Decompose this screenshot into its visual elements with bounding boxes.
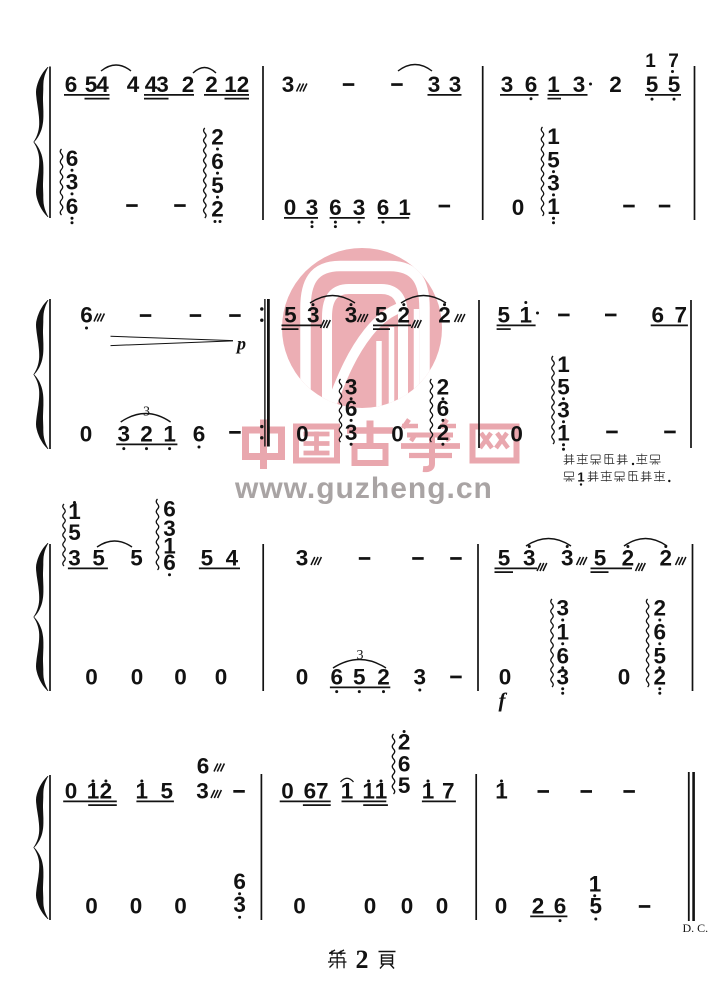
svg-text:0: 0	[401, 894, 414, 919]
svg-text:0: 0	[618, 665, 631, 690]
svg-text:6: 6	[554, 894, 567, 919]
svg-text:6: 6	[66, 146, 79, 171]
svg-text:7: 7	[316, 779, 329, 804]
svg-text:0: 0	[296, 422, 309, 447]
svg-text:3: 3	[428, 72, 441, 97]
svg-text:5: 5	[668, 72, 681, 97]
svg-text:2: 2	[211, 197, 224, 222]
svg-text:6: 6	[193, 422, 206, 447]
svg-text:6: 6	[330, 665, 343, 690]
svg-text:2: 2	[377, 665, 390, 690]
svg-text:1: 1	[547, 72, 560, 97]
svg-text:6: 6	[329, 195, 342, 220]
svg-text:5: 5	[594, 546, 607, 571]
svg-text:5: 5	[375, 303, 388, 328]
svg-text:0: 0	[65, 779, 78, 804]
svg-text:3: 3	[233, 892, 246, 917]
svg-text:3: 3	[118, 422, 131, 447]
svg-text:5: 5	[130, 546, 143, 571]
svg-text:2: 2	[532, 894, 545, 919]
svg-text:1: 1	[557, 352, 570, 377]
svg-text:5: 5	[398, 773, 411, 798]
svg-text:1: 1	[577, 470, 584, 485]
svg-text:1: 1	[520, 303, 533, 328]
svg-text:3: 3	[306, 195, 319, 220]
svg-text:3: 3	[68, 546, 81, 571]
svg-text:0: 0	[80, 422, 93, 447]
svg-text:1: 1	[645, 51, 656, 72]
svg-text:6: 6	[80, 303, 93, 328]
svg-text:7: 7	[668, 51, 679, 72]
svg-text:4: 4	[96, 72, 109, 97]
svg-text:2: 2	[237, 72, 250, 97]
svg-text:1: 1	[398, 195, 411, 220]
svg-text:6: 6	[654, 620, 667, 645]
svg-text:5: 5	[92, 546, 105, 571]
svg-text:0: 0	[293, 894, 306, 919]
svg-text:5: 5	[646, 72, 659, 97]
svg-text:www.guzheng.cn: www.guzheng.cn	[234, 472, 493, 505]
svg-text:3: 3	[357, 648, 364, 663]
svg-text:6: 6	[525, 72, 538, 97]
svg-text:2: 2	[211, 125, 224, 150]
svg-text:6: 6	[233, 869, 246, 894]
svg-text:1: 1	[557, 421, 570, 446]
svg-text:6: 6	[652, 303, 665, 328]
svg-text:6: 6	[65, 72, 78, 97]
svg-text:3: 3	[501, 72, 514, 97]
svg-text:1: 1	[341, 779, 354, 804]
svg-text:6: 6	[197, 754, 210, 779]
svg-text:5: 5	[201, 546, 214, 571]
svg-text:0: 0	[131, 665, 144, 690]
svg-text:2: 2	[654, 596, 667, 621]
svg-text:5: 5	[284, 303, 297, 328]
svg-text:0: 0	[281, 779, 294, 804]
svg-text:6: 6	[211, 149, 224, 174]
svg-text:4: 4	[226, 546, 239, 571]
svg-text:7: 7	[442, 779, 455, 804]
svg-text:3: 3	[353, 195, 366, 220]
svg-text:2: 2	[660, 546, 673, 571]
svg-text:3: 3	[547, 171, 560, 196]
svg-text:2: 2	[182, 72, 195, 97]
svg-text:5: 5	[497, 303, 510, 328]
svg-text:3: 3	[66, 170, 79, 195]
svg-text:2: 2	[437, 420, 450, 445]
svg-text:3: 3	[523, 546, 536, 571]
svg-text:6: 6	[437, 396, 450, 421]
svg-text:5: 5	[161, 779, 174, 804]
svg-text:3: 3	[556, 596, 569, 621]
svg-text:0: 0	[510, 422, 523, 447]
svg-text:2: 2	[205, 72, 218, 97]
svg-text:1: 1	[224, 72, 237, 97]
svg-text:0: 0	[499, 665, 512, 690]
svg-text:5: 5	[68, 520, 81, 545]
svg-text:3: 3	[196, 779, 209, 804]
svg-text:6: 6	[345, 396, 358, 421]
svg-text:0: 0	[391, 422, 404, 447]
svg-text:p: p	[235, 334, 246, 354]
svg-text:D. C.: D. C.	[683, 921, 709, 935]
svg-text:2: 2	[140, 422, 153, 447]
svg-text:0: 0	[436, 894, 449, 919]
svg-text:3: 3	[307, 303, 320, 328]
svg-text:6: 6	[163, 550, 176, 575]
svg-text:3: 3	[296, 546, 309, 571]
svg-text:5: 5	[590, 894, 603, 919]
svg-text:0: 0	[174, 665, 187, 690]
svg-text:2: 2	[654, 665, 667, 690]
svg-text:2: 2	[622, 546, 635, 571]
svg-text:3: 3	[557, 398, 570, 423]
svg-text:3: 3	[556, 665, 569, 690]
svg-text:5: 5	[498, 546, 511, 571]
svg-text:0: 0	[215, 665, 228, 690]
svg-text:6: 6	[66, 194, 79, 219]
svg-text:7: 7	[675, 303, 688, 328]
svg-text:2: 2	[609, 72, 622, 97]
svg-text:1: 1	[556, 620, 569, 645]
svg-text:2: 2	[356, 945, 369, 974]
svg-text:3: 3	[561, 546, 574, 571]
svg-text:5: 5	[547, 147, 560, 172]
svg-text:3: 3	[414, 665, 427, 690]
svg-text:1: 1	[547, 194, 560, 219]
svg-text:6: 6	[377, 195, 390, 220]
svg-text:3: 3	[143, 405, 150, 420]
svg-text:0: 0	[296, 665, 309, 690]
svg-text:0: 0	[85, 665, 98, 690]
svg-text:0: 0	[495, 894, 508, 919]
svg-text:0: 0	[364, 894, 377, 919]
svg-text:0: 0	[85, 894, 98, 919]
svg-text:2: 2	[438, 303, 451, 328]
svg-text:3: 3	[449, 72, 462, 97]
svg-text:2: 2	[398, 303, 411, 328]
svg-text:3: 3	[573, 72, 586, 97]
svg-text:0: 0	[512, 195, 525, 220]
svg-text:5: 5	[353, 665, 366, 690]
svg-text:5: 5	[211, 173, 224, 198]
svg-text:4: 4	[127, 72, 140, 97]
svg-text:1: 1	[163, 422, 176, 447]
svg-text:3: 3	[345, 303, 358, 328]
svg-text:3: 3	[156, 72, 169, 97]
svg-text:3: 3	[345, 420, 358, 445]
svg-text:1: 1	[547, 124, 560, 149]
svg-text:3: 3	[282, 72, 295, 97]
svg-text:6: 6	[304, 779, 317, 804]
svg-text:0: 0	[284, 195, 297, 220]
svg-text:0: 0	[130, 894, 143, 919]
svg-text:5: 5	[557, 375, 570, 400]
svg-text:0: 0	[174, 894, 187, 919]
